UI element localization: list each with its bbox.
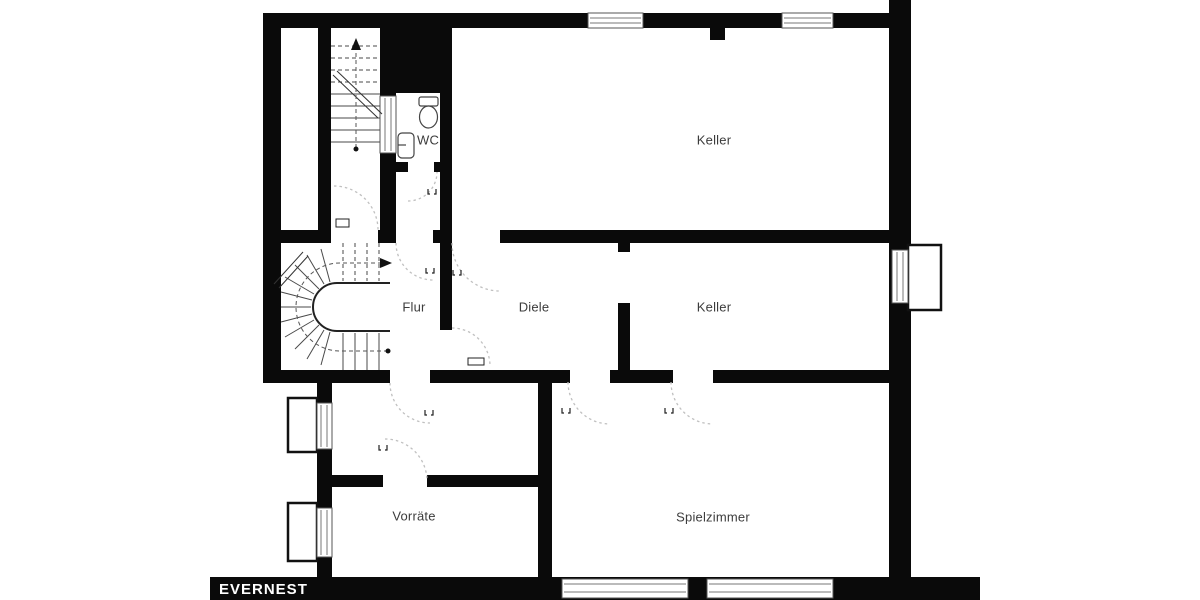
door-arc-icon [385,439,427,481]
room-label-flur: Flur [402,300,425,315]
wall [318,28,331,243]
toilet-icon [419,97,438,128]
window-icon [317,403,332,449]
window-icon [707,579,833,598]
up-arrow-icon [351,38,361,50]
lightwell-icon [288,503,317,561]
lightwell-icon [908,245,941,310]
room-label-diele: Diele [519,300,550,315]
room-label-keller-top: Keller [697,133,731,148]
room-label-spielzimmer: Spielzimmer [676,510,750,525]
room-label-wc: WC [417,133,439,148]
room-label-keller-mid: Keller [697,300,731,315]
door-arc-icon [568,382,610,424]
wall-stub [710,28,725,40]
window-icon [588,13,643,28]
door-arc-icon [408,172,437,201]
wall [378,230,396,243]
window-icon [317,508,332,557]
window-icon [892,250,908,303]
window-icon [380,96,396,153]
wall [427,475,538,487]
wc-fixtures [398,97,438,158]
floorplan-page: WC Keller Flur Diele Keller Vorräte Spie… [0,0,1200,600]
floorplan-canvas [0,0,1200,600]
wall [500,230,889,243]
up-arrow-icon [380,258,392,268]
wall [538,370,552,577]
sink-icon [398,133,414,158]
door-arc-icon [452,243,500,291]
door-leaf-icon [336,219,349,227]
wall [332,475,383,487]
wall [618,303,630,370]
wall [396,162,408,172]
lightwell-icon [288,398,317,452]
wall [263,230,331,243]
wall [433,230,452,243]
door-arc-icon [396,243,433,280]
wall-stub [618,243,630,252]
brand-logo: EVERNEST [219,581,308,598]
door-leaf-icon [468,358,484,365]
staircase-winder-icon [274,243,392,370]
room-label-vorraete: Vorräte [392,509,435,524]
wall [440,93,452,330]
door-arc-icon [671,382,713,424]
wall-shaft [394,28,452,93]
wall [434,162,452,172]
wall [263,13,281,383]
window-icon [782,13,833,28]
door-arc-icon [390,383,430,423]
wall [610,370,673,383]
wall [263,370,390,383]
staircase-straight-icon [331,38,382,152]
window-icon [562,579,688,598]
wall [713,370,889,383]
